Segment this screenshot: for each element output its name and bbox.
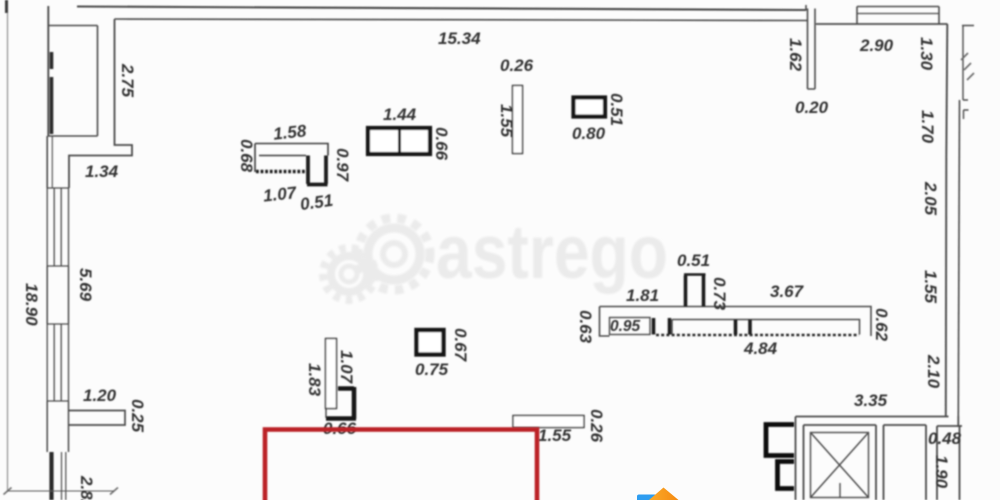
- svg-text:1.70: 1.70: [918, 110, 937, 144]
- svg-text:0.63: 0.63: [576, 310, 595, 344]
- svg-text:0.20: 0.20: [795, 98, 829, 117]
- svg-text:1.07: 1.07: [337, 350, 356, 385]
- svg-text:2.90: 2.90: [859, 36, 894, 55]
- svg-text:0.48: 0.48: [928, 429, 962, 448]
- svg-text:1.83: 1.83: [305, 363, 324, 397]
- svg-text:0.26: 0.26: [500, 56, 534, 75]
- svg-text:5.69: 5.69: [76, 268, 95, 302]
- svg-text:2.05: 2.05: [921, 181, 940, 216]
- svg-text:0.95: 0.95: [610, 318, 641, 335]
- svg-text:0.25: 0.25: [128, 399, 147, 433]
- svg-text:0.51: 0.51: [299, 191, 334, 214]
- svg-text:0.66: 0.66: [432, 127, 451, 161]
- svg-text:0.67: 0.67: [451, 328, 470, 363]
- svg-text:0.75: 0.75: [415, 360, 449, 379]
- svg-text:0.68: 0.68: [237, 139, 256, 173]
- svg-text:15.34: 15.34: [438, 29, 481, 48]
- svg-text:1.44: 1.44: [383, 105, 417, 124]
- svg-text:1.81: 1.81: [626, 286, 659, 305]
- svg-text:0.97: 0.97: [333, 148, 352, 183]
- svg-text:2.75: 2.75: [118, 63, 137, 98]
- svg-text:1.55: 1.55: [921, 270, 940, 304]
- svg-text:astrego: astrego: [436, 210, 668, 295]
- svg-text:1.55: 1.55: [538, 426, 572, 445]
- svg-text:2.10: 2.10: [924, 354, 943, 389]
- svg-text:1.62: 1.62: [786, 38, 805, 72]
- svg-text:0.51: 0.51: [607, 93, 626, 126]
- svg-text:1.55: 1.55: [497, 104, 516, 138]
- svg-text:4.84: 4.84: [743, 339, 778, 358]
- svg-text:0.51: 0.51: [677, 251, 710, 270]
- svg-text:0.26: 0.26: [587, 409, 606, 443]
- svg-text:3.35: 3.35: [854, 391, 888, 410]
- svg-text:1.58: 1.58: [272, 121, 307, 143]
- svg-text:0.73: 0.73: [710, 277, 729, 311]
- svg-text:1.07: 1.07: [262, 183, 298, 206]
- svg-text:1.20: 1.20: [83, 386, 117, 405]
- svg-text:0.62: 0.62: [872, 308, 891, 342]
- svg-text:1.90: 1.90: [932, 455, 951, 489]
- svg-text:2.82: 2.82: [77, 475, 96, 500]
- svg-text:3.67: 3.67: [770, 282, 805, 301]
- svg-text:18.90: 18.90: [22, 283, 41, 326]
- svg-text:1.30: 1.30: [917, 37, 936, 71]
- svg-text:0.80: 0.80: [572, 124, 606, 143]
- svg-text:1.34: 1.34: [85, 162, 119, 181]
